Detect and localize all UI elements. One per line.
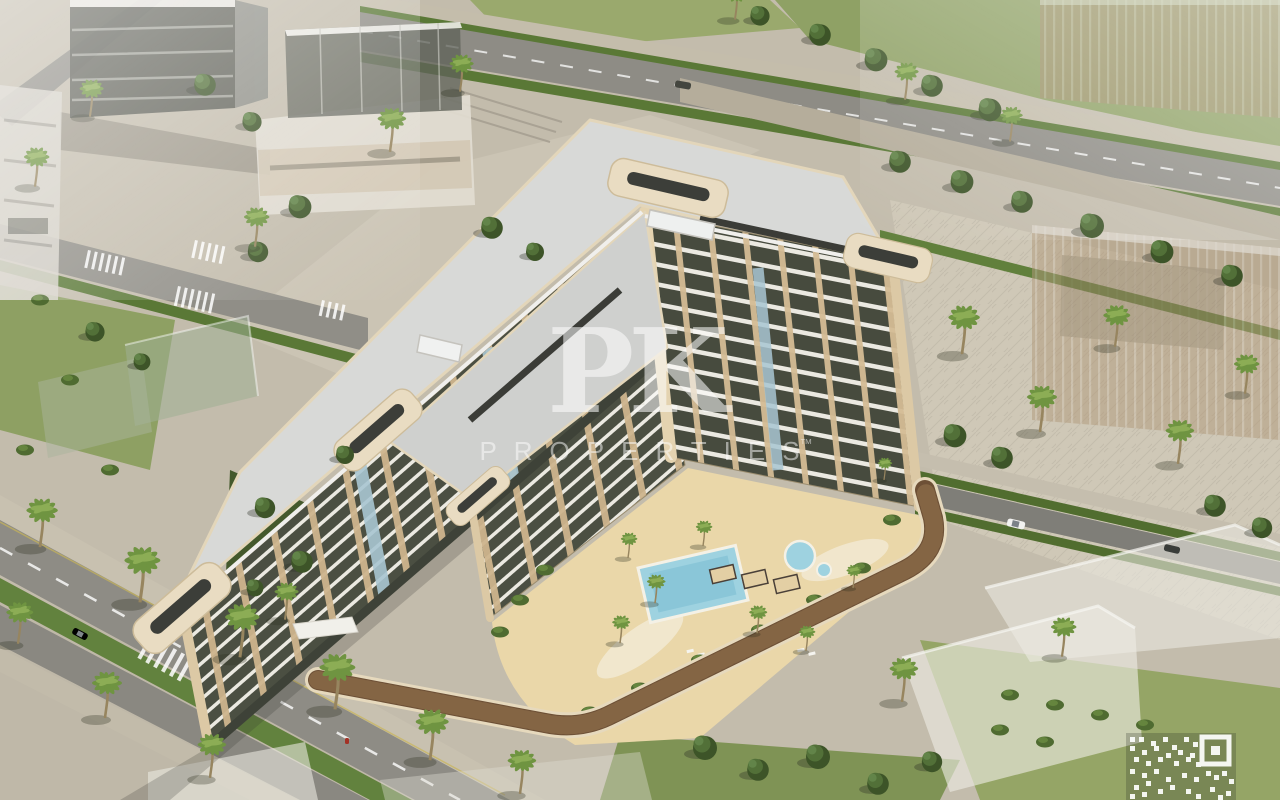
round-pool	[785, 541, 815, 571]
watermark-logo: PK	[547, 304, 733, 440]
watermark-trademark: ™	[800, 436, 813, 451]
render-viewport: PK PROPERTIES ™	[0, 0, 1280, 800]
haze-top-left	[0, 0, 420, 300]
qr-code	[1126, 733, 1236, 800]
watermark-wordmark: PROPERTIES	[479, 436, 816, 466]
kids-pool	[817, 563, 831, 577]
aerial-render: PK PROPERTIES ™	[0, 0, 1280, 800]
haze-top-right	[860, 0, 1280, 240]
cyclist	[345, 738, 349, 744]
